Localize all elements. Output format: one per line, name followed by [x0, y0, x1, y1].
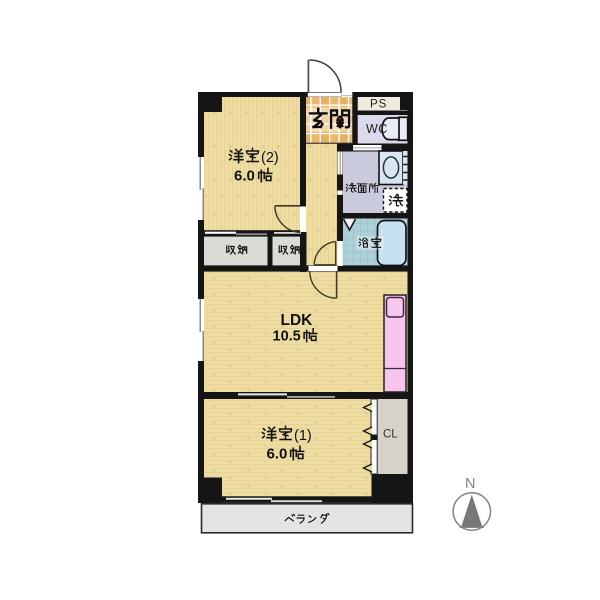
svg-text:PS: PS — [370, 99, 387, 111]
svg-text:10.5: 10.5 — [273, 329, 301, 345]
svg-text:6.0: 6.0 — [267, 446, 288, 463]
svg-text:WC: WC — [366, 122, 388, 136]
svg-text:(2): (2) — [261, 150, 279, 166]
svg-text:6.0: 6.0 — [234, 168, 255, 185]
svg-text:N: N — [465, 476, 475, 492]
svg-text:CL: CL — [383, 429, 398, 441]
svg-text:LDK: LDK — [281, 312, 314, 329]
svg-text:(1): (1) — [294, 428, 312, 444]
